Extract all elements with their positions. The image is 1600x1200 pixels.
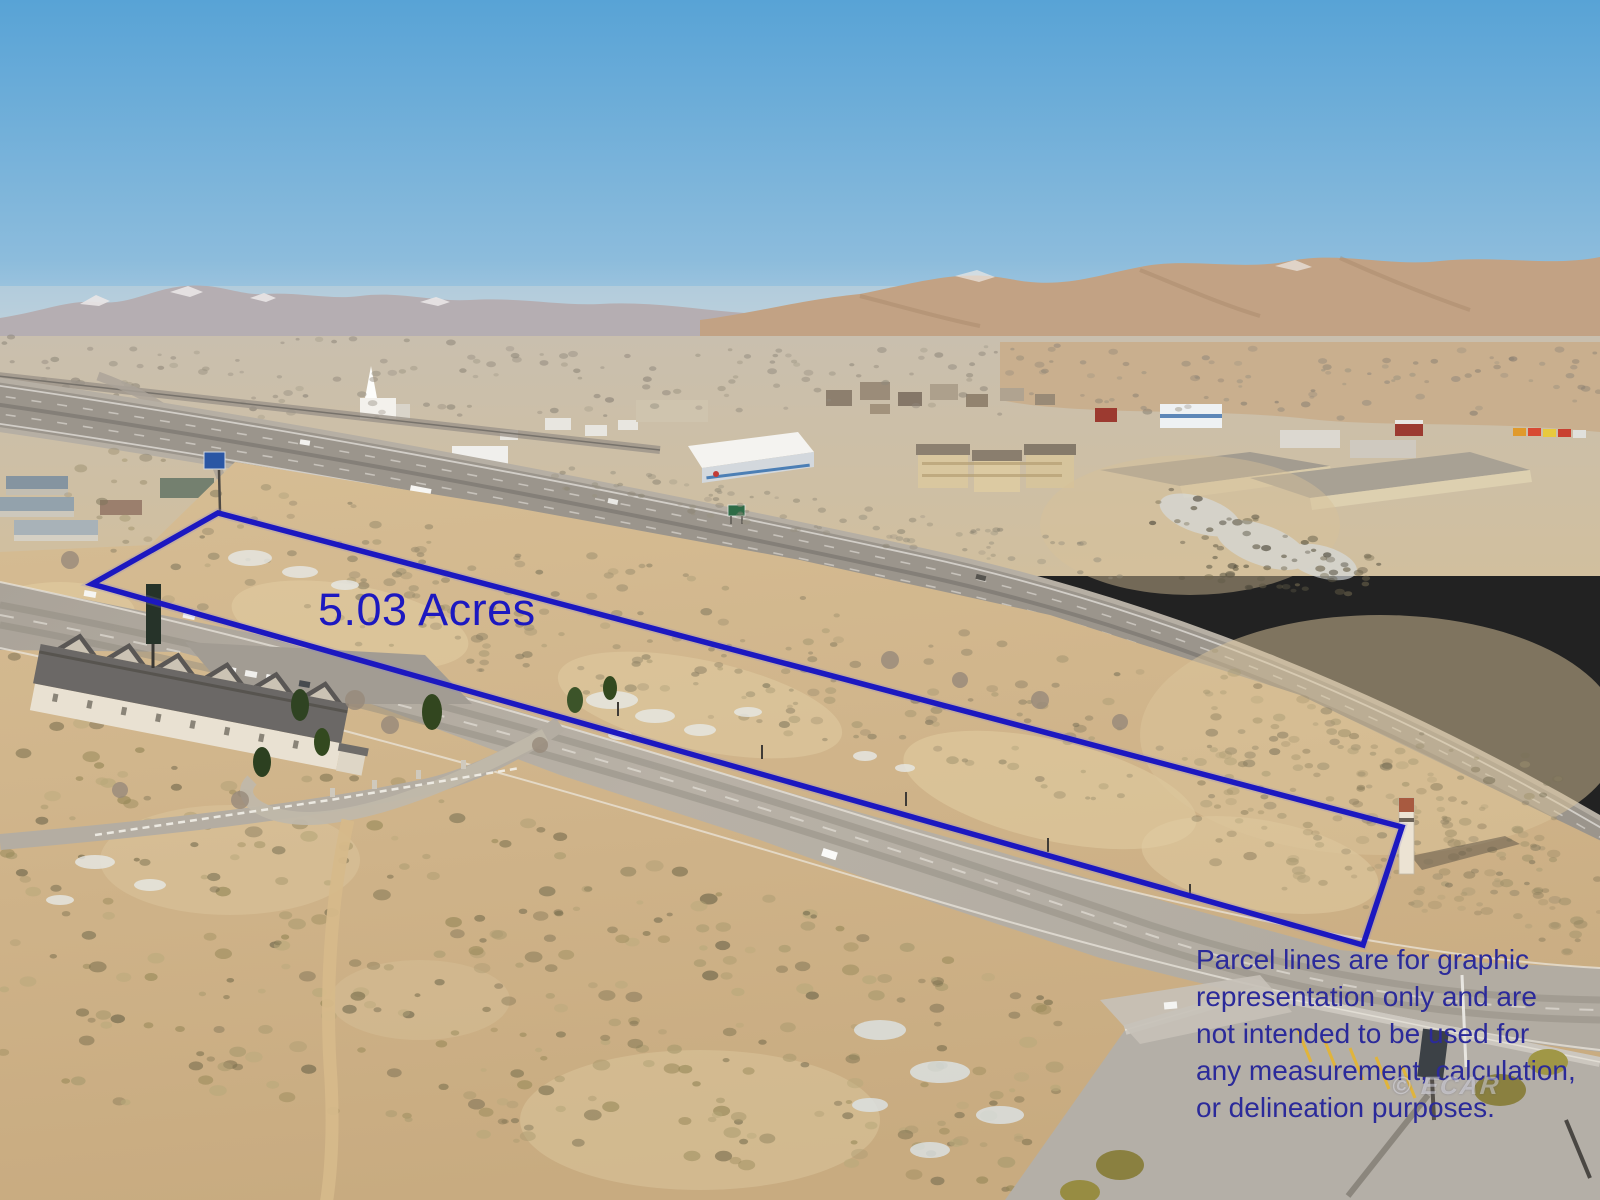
industrial-shed <box>636 400 708 422</box>
aerial-parcel-photo: 5.03 Acres Parcel lines are for graphic … <box>0 0 1600 1200</box>
apartments <box>916 444 1076 492</box>
bush <box>1474 1074 1526 1106</box>
photo-scene <box>0 0 1600 1200</box>
bush <box>1096 1150 1144 1180</box>
bush <box>1528 1049 1568 1075</box>
